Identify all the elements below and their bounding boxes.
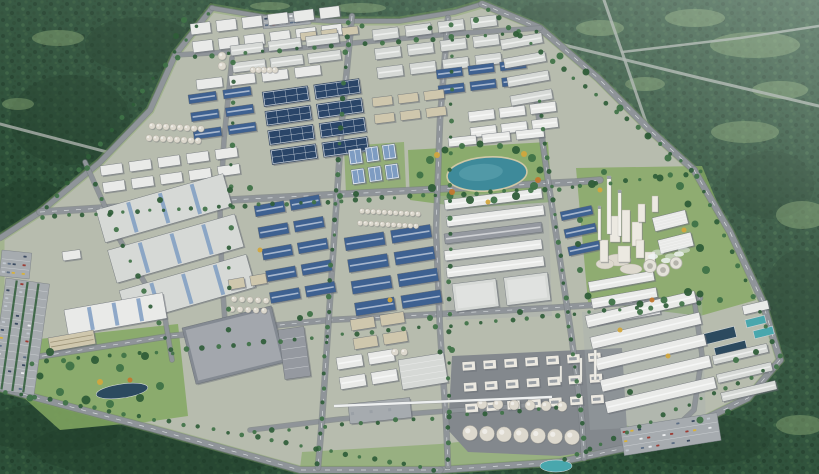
tree (683, 172, 688, 177)
tree (547, 169, 552, 174)
tree (86, 154, 91, 159)
tree (636, 125, 641, 130)
tree (175, 55, 180, 60)
tree-clump (27, 395, 34, 402)
tree (407, 193, 412, 198)
tree (550, 197, 555, 202)
tree (723, 386, 727, 390)
building-roof (267, 12, 288, 25)
tree (359, 421, 363, 425)
silo-highlight (403, 224, 405, 226)
silo (404, 211, 409, 216)
tree (171, 352, 175, 356)
tree (486, 8, 490, 12)
tree (270, 202, 275, 207)
tree-clump (426, 156, 434, 164)
industrial-park-aerial-view (0, 0, 819, 474)
tree-clump (337, 193, 343, 199)
silo-highlight (398, 223, 400, 225)
tree (543, 142, 547, 146)
tree (464, 321, 468, 325)
autumn-tree (128, 378, 133, 383)
silo-highlight (375, 222, 377, 224)
tree (566, 310, 570, 314)
tree (312, 46, 316, 50)
tree (327, 278, 332, 283)
tree (340, 96, 345, 101)
car (289, 15, 292, 17)
silo (357, 220, 362, 225)
tree (393, 417, 398, 422)
tree (535, 30, 539, 34)
tree (363, 41, 368, 46)
tree-clump (585, 293, 592, 300)
tree (379, 195, 384, 200)
tree (338, 125, 343, 130)
tree (663, 303, 668, 308)
silo-highlight (262, 309, 264, 311)
tree (449, 119, 454, 124)
tree-clump (459, 143, 465, 149)
hip-roof-top (455, 282, 495, 308)
tree (239, 433, 244, 438)
tree (341, 81, 346, 86)
tree (227, 246, 231, 250)
silo (267, 67, 273, 73)
tree (449, 324, 453, 328)
tree (333, 233, 336, 236)
process-tower (618, 246, 630, 262)
rooftop-unit (577, 399, 580, 402)
tree (770, 339, 775, 344)
silo (480, 426, 495, 441)
silo (359, 208, 364, 213)
rooftop-unit (511, 361, 514, 364)
tree (229, 163, 232, 166)
tree (447, 394, 451, 398)
tree (449, 22, 454, 27)
tree-clump (56, 388, 64, 396)
tree (638, 178, 641, 181)
tree (135, 209, 140, 214)
silo-highlight (516, 430, 521, 435)
tree (138, 351, 142, 355)
process-tower (636, 240, 644, 258)
tree (121, 412, 125, 416)
tree-clump (247, 185, 253, 191)
tree (556, 240, 561, 245)
silo-highlight (168, 137, 170, 139)
silo-highlight (157, 124, 159, 126)
silo (402, 223, 407, 228)
tree (637, 424, 641, 428)
tree (401, 326, 406, 331)
silo-highlight (268, 68, 270, 70)
tree (496, 15, 501, 20)
silo-highlight (273, 68, 275, 70)
tree (329, 44, 334, 49)
tree-clump (473, 17, 479, 23)
silo (410, 211, 415, 216)
tree (65, 181, 70, 186)
silo (371, 209, 376, 214)
tree (243, 204, 248, 209)
autumn-tree (388, 298, 393, 303)
tree (322, 354, 326, 358)
car (290, 22, 293, 24)
cooling-tower-mouth (647, 263, 653, 269)
tree (323, 425, 327, 429)
silo (541, 401, 551, 411)
tree (261, 339, 267, 345)
tree (189, 206, 193, 210)
tree (447, 361, 450, 364)
tree (433, 324, 438, 329)
silo-highlight (358, 221, 360, 223)
tree-clump (645, 133, 652, 140)
tree (269, 438, 273, 442)
tree (557, 187, 562, 192)
tree (163, 62, 168, 67)
tree (226, 307, 231, 312)
cooling-tower-mouth (673, 260, 678, 265)
tree (386, 328, 390, 332)
tree (587, 310, 590, 313)
tree (231, 121, 234, 124)
silo-highlight (150, 124, 152, 126)
tree-clump (665, 155, 672, 162)
tree (209, 53, 214, 58)
tree (135, 273, 141, 279)
tree (107, 212, 112, 217)
tree (449, 102, 452, 105)
tree (328, 263, 333, 268)
tree (148, 209, 151, 212)
tree (417, 326, 420, 329)
tree (545, 155, 550, 160)
tree (380, 41, 385, 46)
tree-clump (733, 357, 739, 363)
tree-clump (141, 352, 149, 360)
tree (611, 436, 616, 441)
silo-highlight (392, 223, 394, 225)
autumn-tree (258, 248, 263, 253)
tree (749, 376, 753, 380)
silo-highlight (416, 212, 418, 214)
tree (448, 264, 453, 269)
silo-highlight (372, 210, 374, 212)
tree (358, 455, 362, 459)
tree (541, 127, 545, 131)
tree (648, 306, 653, 311)
silo (245, 307, 251, 313)
autumn-tree (434, 152, 440, 158)
tree (67, 213, 71, 217)
tree-clump (91, 356, 99, 364)
tree (567, 325, 571, 329)
tree-clump (427, 315, 433, 321)
silo (146, 135, 152, 141)
silo (393, 210, 398, 215)
tree (243, 51, 247, 55)
tree (163, 336, 167, 340)
tree (569, 337, 573, 341)
rooftop-unit (351, 412, 354, 415)
tree (366, 197, 371, 202)
autumn-tree (682, 228, 687, 233)
tree (587, 447, 592, 452)
silo (376, 209, 381, 214)
tree-clump (116, 364, 124, 372)
tree (137, 414, 141, 418)
silo (237, 306, 243, 312)
tree-clump (136, 394, 144, 402)
silo (191, 125, 197, 131)
tree (465, 412, 469, 416)
tree (562, 457, 567, 462)
rooftop-unit (470, 385, 473, 388)
silo-highlight (248, 298, 250, 300)
tree (155, 351, 158, 354)
silo (401, 349, 408, 356)
tree (421, 193, 425, 197)
tree (574, 379, 579, 384)
tree (326, 200, 331, 205)
rooftop-unit (533, 381, 536, 384)
tree (283, 440, 288, 445)
silo-highlight (240, 297, 242, 299)
tree-clump (537, 167, 544, 174)
tree-clump (676, 182, 684, 190)
tree (140, 89, 145, 94)
tree (110, 128, 114, 132)
autumn-tree (650, 298, 655, 303)
tree (92, 405, 96, 409)
silo (263, 298, 269, 304)
tree (326, 294, 332, 300)
car (22, 264, 25, 266)
tree (744, 279, 748, 283)
tree (679, 159, 682, 162)
tree (479, 321, 482, 324)
tree (679, 301, 684, 306)
silo (198, 126, 204, 132)
tree (119, 115, 124, 120)
building-roof (293, 9, 314, 22)
tree (341, 333, 344, 336)
tree (554, 406, 558, 410)
tree-clump (725, 409, 731, 415)
tree (578, 184, 582, 188)
tree (571, 185, 575, 189)
silo-highlight (386, 223, 388, 225)
tree (573, 365, 576, 368)
tree (173, 50, 177, 54)
tree (230, 143, 235, 148)
tree (708, 203, 712, 207)
tree (571, 352, 575, 356)
tree (430, 37, 435, 42)
tree-clump (702, 266, 710, 274)
tree (525, 316, 529, 320)
tree (228, 203, 232, 207)
tree (229, 225, 234, 230)
tree (3, 390, 8, 395)
tree (494, 319, 498, 323)
tree (699, 397, 702, 400)
silo (170, 124, 176, 130)
tree (434, 194, 437, 197)
tree (448, 183, 452, 187)
tree (342, 49, 348, 55)
tree (448, 34, 454, 40)
tree (431, 468, 436, 473)
tree (318, 431, 322, 435)
tree (599, 443, 602, 446)
silo-highlight (196, 139, 198, 141)
tree (320, 416, 325, 421)
silo (565, 430, 580, 445)
silo (253, 307, 259, 313)
silo-highlight (185, 126, 187, 128)
silo-highlight (465, 428, 470, 433)
tree (447, 297, 452, 302)
tree-clump (637, 301, 644, 308)
tree-clump (181, 17, 187, 23)
tree (195, 24, 199, 28)
tree-clump (661, 297, 668, 304)
tree (299, 201, 303, 205)
industrial-park-render (0, 0, 819, 474)
silo-highlight (377, 210, 379, 212)
silo (380, 222, 385, 227)
car (7, 271, 10, 273)
rooftop-unit (388, 408, 391, 411)
tree (376, 421, 380, 425)
tree (216, 344, 221, 349)
tree (114, 227, 119, 232)
pond (540, 460, 572, 472)
tree (448, 168, 452, 172)
tree-clump (157, 197, 163, 203)
tree (327, 310, 331, 314)
tree-clump (637, 309, 643, 315)
tree (396, 39, 401, 44)
tree (184, 346, 190, 352)
tree (325, 341, 328, 344)
tree (576, 393, 581, 398)
tree (339, 199, 343, 203)
tree-clump (601, 169, 607, 175)
tree-clump (657, 175, 664, 182)
silo-highlight (264, 299, 266, 301)
car (22, 273, 25, 275)
silo (415, 211, 420, 216)
silo-highlight (527, 402, 531, 406)
tree (448, 199, 452, 203)
tree (730, 249, 735, 254)
tree (76, 167, 81, 172)
tree (694, 174, 699, 179)
tree (98, 141, 103, 146)
silo-highlight (175, 138, 177, 140)
tree-clump (696, 244, 704, 252)
tree (19, 393, 23, 397)
silo (369, 221, 374, 226)
tree-clump (106, 400, 114, 408)
tree (193, 54, 197, 58)
tree (553, 213, 556, 216)
hip-roof-top (507, 276, 547, 302)
stockpile-mound (620, 264, 642, 274)
tree (226, 327, 231, 332)
tree-clump (156, 382, 164, 390)
rooftop-unit (597, 397, 600, 400)
tree-clump (692, 221, 699, 228)
tree (461, 192, 466, 197)
tree-clump (438, 350, 443, 355)
tree (343, 452, 348, 457)
tree (450, 70, 454, 74)
silo (250, 67, 256, 73)
tree (334, 188, 339, 193)
tree (132, 103, 136, 107)
tree (649, 420, 653, 424)
tree (448, 232, 452, 236)
tree (162, 209, 165, 212)
tree (344, 66, 348, 70)
tree (168, 347, 173, 352)
tree-clump (417, 172, 424, 179)
tree (295, 47, 298, 50)
silo-highlight (400, 211, 402, 213)
tree (414, 37, 419, 42)
tree (227, 286, 232, 291)
silo (514, 428, 529, 443)
silo-highlight (161, 137, 163, 139)
tree (446, 440, 451, 445)
tree (353, 197, 358, 202)
tree (578, 407, 583, 412)
tree (449, 135, 452, 138)
silo (497, 427, 512, 442)
silo (363, 221, 368, 226)
tree (55, 194, 59, 198)
tree (100, 197, 104, 201)
exhaust-stack (560, 366, 562, 382)
silo-highlight (364, 222, 366, 224)
tree (63, 400, 69, 406)
tree (538, 49, 543, 54)
silo (218, 52, 226, 60)
tree (230, 60, 235, 65)
tree (714, 219, 719, 224)
tree (554, 225, 557, 228)
chimney (618, 190, 621, 236)
tree-clump (575, 241, 581, 247)
tree (537, 407, 541, 411)
tree (80, 213, 85, 218)
silo (463, 426, 478, 441)
tree (511, 318, 516, 323)
tree (393, 196, 396, 199)
tree (177, 207, 181, 211)
tree (538, 100, 541, 103)
silo (149, 123, 155, 129)
silo (385, 222, 390, 227)
silo-highlight (192, 126, 194, 128)
silo-highlight (559, 403, 563, 407)
